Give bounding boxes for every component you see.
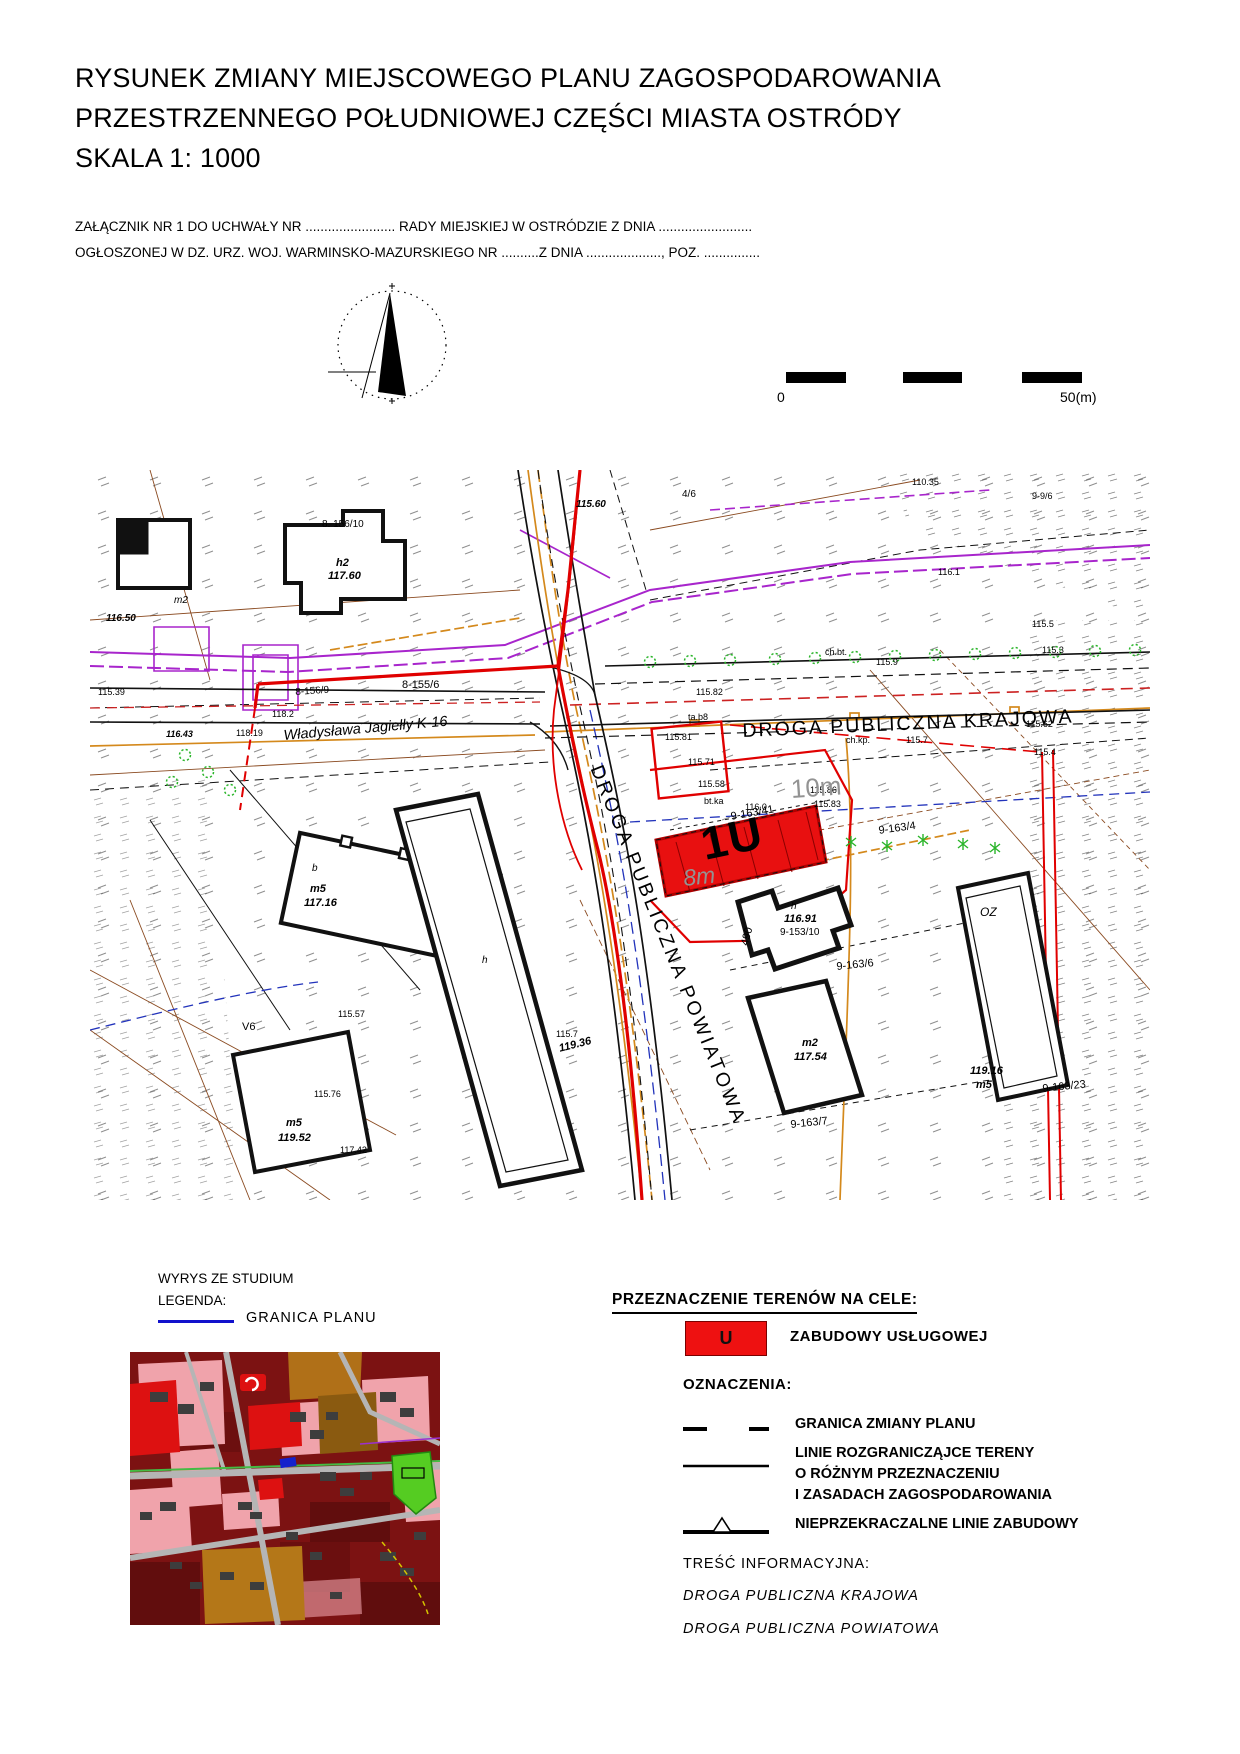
info-droga-krajowa: DROGA PUBLICZNA KRAJOWA	[683, 1588, 919, 1604]
zone-u-symbol: U	[720, 1328, 733, 1349]
map-label: 9-163/23	[1042, 1079, 1086, 1095]
study-block: WYRYS ZE STUDIUM LEGENDA:	[158, 1268, 294, 1312]
map-label: m2	[174, 596, 188, 607]
map-label: b	[312, 864, 318, 875]
scalebar-fifty: 50(m)	[1060, 389, 1097, 405]
linie-zabudowy-symbol	[683, 1512, 769, 1542]
study-title: WYRYS ZE STUDIUM	[158, 1268, 294, 1290]
map-label: h	[482, 956, 488, 967]
granica-zmiany-symbol	[683, 1415, 769, 1445]
study-inset-map	[130, 1352, 440, 1625]
map-label: 115.57	[338, 1010, 365, 1019]
title-line1: RYSUNEK ZMIANY MIEJSCOWEGO PLANU ZAGOSPO…	[75, 58, 941, 98]
map-label: 115.4	[1034, 748, 1056, 757]
linie-zabudowy-label: NIEPRZEKRACZALNE LINIE ZABUDOWY	[795, 1514, 1079, 1535]
plan-sheet: RYSUNEK ZMIANY MIEJSCOWEGO PLANU ZAGOSPO…	[0, 0, 1240, 1754]
map-label: h	[791, 902, 797, 913]
attachment-line2: OGŁOSZONEJ W DZ. URZ. WOJ. WARMINSKO-MAZ…	[75, 240, 760, 266]
map-label: 9-153/10	[780, 928, 819, 939]
map-label: 9-163/4	[878, 821, 917, 838]
map-label: 8. 156/10	[322, 520, 364, 531]
north-arrow	[320, 268, 470, 418]
plan-map: 8. 156/10h2117.60m2116.50115.604/6110.35…	[90, 470, 1150, 1200]
map-label: m5	[310, 884, 326, 896]
granica-planu-label: GRANICA PLANU	[246, 1310, 377, 1326]
map-label: 116.91	[784, 914, 817, 926]
map-label: 118.2	[272, 710, 294, 719]
map-label: 115.7	[906, 736, 928, 745]
north-arrow-needle	[378, 293, 406, 396]
map-label: 115.58	[698, 780, 725, 789]
linie-rozgraniczajace-symbol	[683, 1448, 769, 1478]
map-label: ch.bt.	[825, 648, 847, 657]
scalebar-segment	[786, 372, 846, 383]
map-label: 9-163/6	[836, 958, 874, 973]
map-label: 117.16	[304, 898, 337, 910]
map-label: m5	[286, 1118, 302, 1130]
map-label: 119.16	[970, 1066, 1003, 1078]
title-line2: PRZESTRZENNEGO POŁUDNIOWEJ CZĘŚCI MIASTA…	[75, 98, 941, 138]
map-label: 116.1	[938, 568, 960, 577]
map-label: 8-156/9	[295, 686, 330, 699]
granica-planu-line	[158, 1320, 234, 1323]
map-label: 116.43	[166, 730, 193, 739]
map-label: 9-163/7	[790, 1116, 828, 1131]
map-label: 119.52	[278, 1133, 311, 1145]
map-label: 116.50	[106, 614, 136, 625]
granica-zmiany-label: GRANICA ZMIANY PLANU	[795, 1414, 975, 1435]
zone-u-label: ZABUDOWY USŁUGOWEJ	[790, 1328, 988, 1345]
map-label: 115.39	[98, 688, 125, 697]
map-label: 115.71	[688, 758, 715, 767]
oznaczenia-heading: OZNACZENIA:	[683, 1376, 792, 1393]
map-label: 115.60	[576, 500, 606, 511]
map-label: 9-9/6	[1032, 492, 1053, 501]
map-label: 117.60	[328, 571, 361, 583]
study-legend-heading: LEGENDA:	[158, 1290, 294, 1312]
scalebar-segment	[903, 372, 962, 383]
attachment-note: ZAŁĄCZNIK NR 1 DO UCHWAŁY NR ...........…	[75, 214, 760, 266]
page-title: RYSUNEK ZMIANY MIEJSCOWEGO PLANU ZAGOSPO…	[75, 58, 941, 178]
map-label: 115.3	[1042, 646, 1064, 655]
map-label: 4/6	[682, 490, 696, 501]
map-label: m5	[976, 1080, 992, 1092]
map-label: 115.82	[696, 688, 723, 697]
map-label: 115.81	[665, 733, 692, 742]
map-label: m2	[802, 1038, 818, 1050]
scalebar-segment	[1022, 372, 1082, 383]
map-label: 115.5	[1032, 620, 1054, 629]
legend-title: PRZEZNACZENIE TERENÓW NA CELE:	[612, 1291, 917, 1314]
map-label: 117.42	[340, 1146, 367, 1155]
map-label: 10m	[790, 772, 842, 803]
map-label: V6	[242, 1022, 255, 1034]
title-line3: SKALA 1: 1000	[75, 138, 941, 178]
tresc-heading: TREŚĆ INFORMACYJNA:	[683, 1556, 870, 1572]
map-label: 117.54	[794, 1052, 827, 1064]
map-label: 115.9	[876, 658, 898, 667]
map-label: 490	[740, 926, 756, 947]
map-label: 110.35	[912, 478, 939, 487]
info-droga-powiatowa: DROGA PUBLICZNA POWIATOWA	[683, 1621, 940, 1637]
attachment-line1: ZAŁĄCZNIK NR 1 DO UCHWAŁY NR ...........…	[75, 214, 760, 240]
map-label: h2	[336, 558, 349, 570]
scalebar-zero: 0	[777, 389, 785, 405]
map-label: OZ	[980, 906, 997, 919]
map-label: 8-155/6	[402, 680, 439, 692]
map-label: ta.b8	[688, 713, 708, 722]
linie-rozgraniczajace-label: LINIE ROZGRANICZĄJCE TERENY O RÓŻNYM PRZ…	[795, 1443, 1052, 1506]
map-label: 115.76	[314, 1090, 341, 1099]
zone-u-swatch: U	[685, 1321, 767, 1356]
map-label: bt.ka	[704, 797, 724, 806]
map-label: 118.19	[236, 729, 263, 738]
